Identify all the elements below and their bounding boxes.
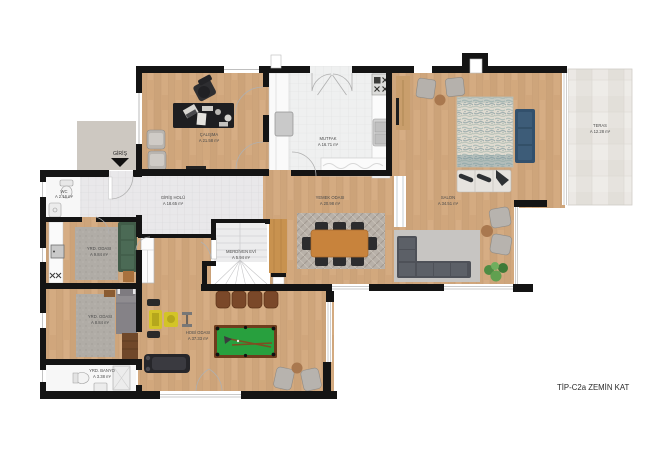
svg-text:YRD. ODASI: YRD. ODASI: [87, 246, 111, 251]
svg-text:MUTFAK: MUTFAK: [320, 136, 337, 141]
svg-text:A 3.38 m²: A 3.38 m²: [93, 374, 112, 379]
svg-text:HOBİ ODASI: HOBİ ODASI: [186, 330, 210, 335]
svg-text:A 37.33 m²: A 37.33 m²: [188, 336, 209, 341]
svg-text:A 20.98 m²: A 20.98 m²: [320, 201, 341, 206]
svg-text:A 5.94 m²: A 5.94 m²: [232, 255, 251, 260]
svg-text:SALON: SALON: [441, 195, 455, 200]
svg-text:YEMEK ODASI: YEMEK ODASI: [316, 195, 345, 200]
svg-text:ÇALIŞMA: ÇALIŞMA: [200, 132, 219, 137]
svg-text:TİP-C2a ZEMİN KAT: TİP-C2a ZEMİN KAT: [557, 383, 629, 392]
svg-text:A 12.28 m²: A 12.28 m²: [590, 129, 611, 134]
svg-text:GİRİŞ: GİRİŞ: [113, 150, 128, 157]
svg-text:A 18.65 m²: A 18.65 m²: [163, 201, 184, 206]
svg-text:GİRİŞ HOLÜ: GİRİŞ HOLÜ: [161, 195, 185, 200]
svg-text:A 8.84 m²: A 8.84 m²: [91, 320, 110, 325]
svg-text:A 16.71 m²: A 16.71 m²: [318, 142, 339, 147]
svg-text:A 34.51 m²: A 34.51 m²: [438, 201, 459, 206]
svg-text:YRD. ODASI: YRD. ODASI: [88, 314, 112, 319]
svg-text:MERDİVEN EVİ: MERDİVEN EVİ: [226, 249, 256, 254]
svg-text:A 9.84 m²: A 9.84 m²: [90, 252, 109, 257]
svg-text:TERAS: TERAS: [593, 123, 607, 128]
svg-text:YRD. BANYO: YRD. BANYO: [89, 368, 116, 373]
svg-text:A 2.16 m²: A 2.16 m²: [55, 194, 74, 199]
svg-text:A 21.58 m²: A 21.58 m²: [199, 138, 220, 143]
